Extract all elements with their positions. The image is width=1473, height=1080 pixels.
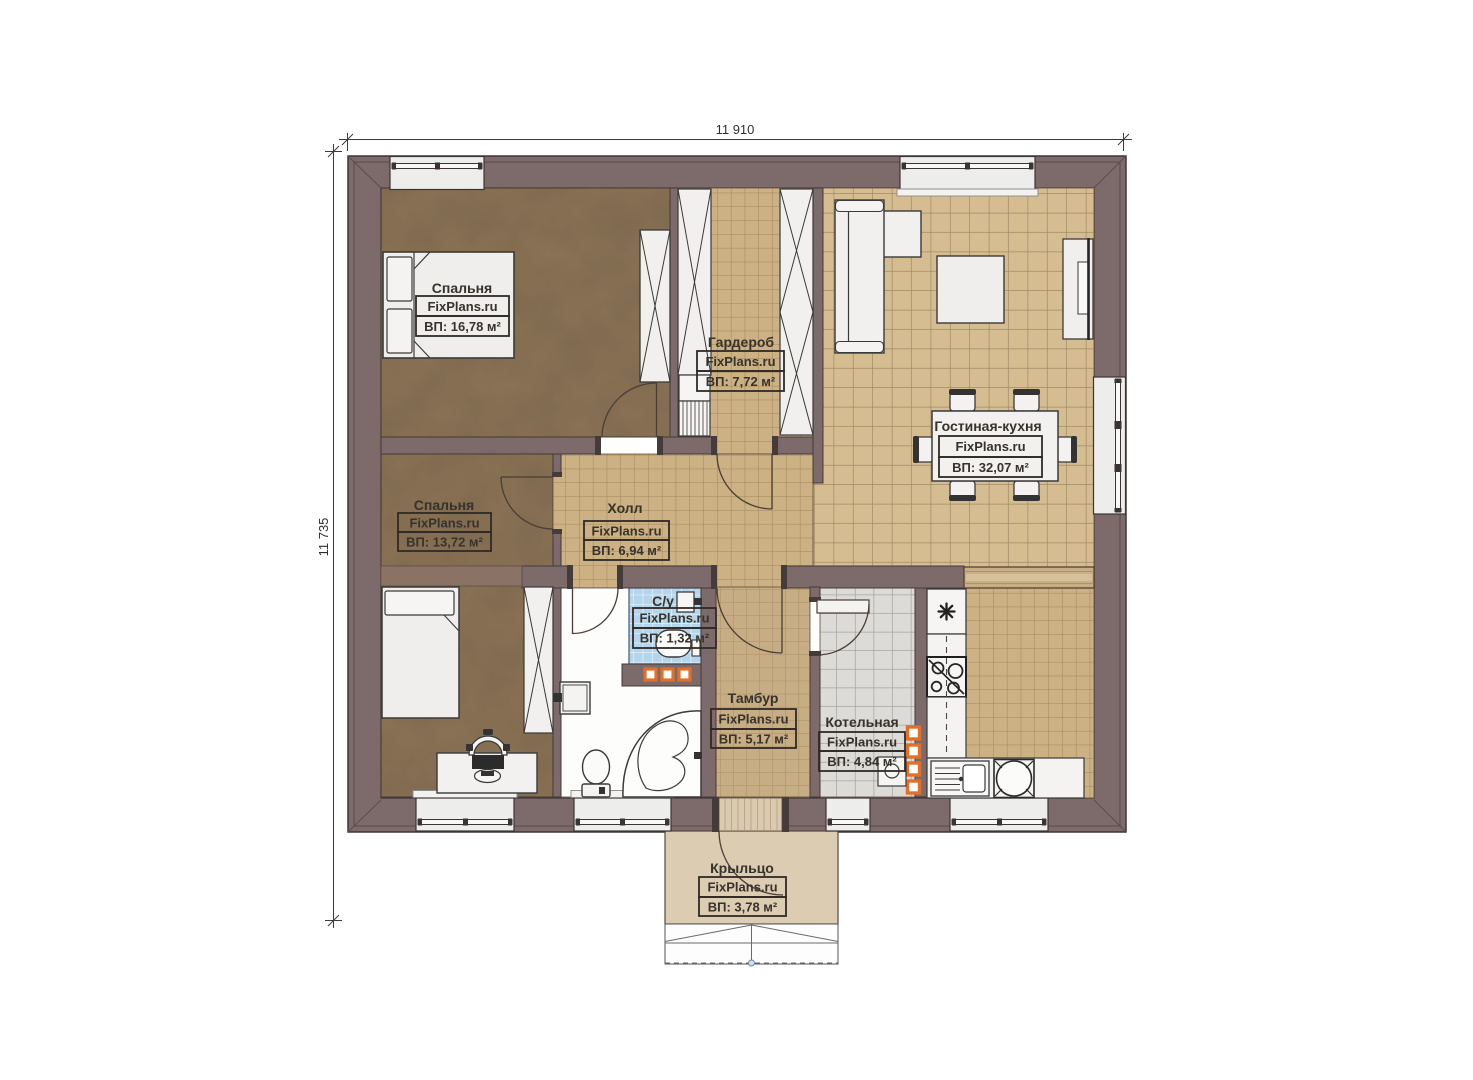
- svg-text:FixPlans.ru: FixPlans.ru: [591, 524, 661, 539]
- svg-text:Холл: Холл: [607, 500, 642, 516]
- svg-text:ВП: 4,84 м²: ВП: 4,84 м²: [827, 754, 897, 769]
- svg-text:ВП: 16,78 м²: ВП: 16,78 м²: [424, 319, 501, 334]
- svg-text:FixPlans.ru: FixPlans.ru: [639, 611, 709, 626]
- svg-text:FixPlans.ru: FixPlans.ru: [707, 880, 777, 895]
- svg-text:Тамбур: Тамбур: [728, 690, 779, 706]
- svg-text:ВП: 1,32 м²: ВП: 1,32 м²: [640, 631, 710, 646]
- svg-text:Гостиная-кухня: Гостиная-кухня: [934, 418, 1041, 434]
- svg-text:ВП: 5,17 м²: ВП: 5,17 м²: [719, 732, 789, 747]
- svg-text:11 735: 11 735: [316, 518, 331, 557]
- svg-text:Спальня: Спальня: [432, 280, 492, 296]
- svg-text:Котельная: Котельная: [825, 714, 898, 730]
- svg-text:Спальня: Спальня: [414, 497, 474, 513]
- svg-text:Гардероб: Гардероб: [708, 334, 775, 350]
- svg-text:ВП: 3,78 м²: ВП: 3,78 м²: [708, 900, 778, 915]
- svg-text:FixPlans.ru: FixPlans.ru: [409, 516, 479, 531]
- svg-text:FixPlans.ru: FixPlans.ru: [718, 712, 788, 727]
- svg-text:ВП: 13,72 м²: ВП: 13,72 м²: [406, 535, 483, 550]
- svg-text:FixPlans.ru: FixPlans.ru: [955, 439, 1025, 454]
- svg-text:FixPlans.ru: FixPlans.ru: [427, 299, 497, 314]
- svg-text:FixPlans.ru: FixPlans.ru: [705, 354, 775, 369]
- svg-text:ВП: 7,72 м²: ВП: 7,72 м²: [706, 374, 776, 389]
- svg-text:Крыльцо: Крыльцо: [710, 860, 774, 876]
- svg-text:ВП: 6,94 м²: ВП: 6,94 м²: [592, 543, 662, 558]
- svg-text:С/у: С/у: [652, 593, 674, 609]
- svg-text:FixPlans.ru: FixPlans.ru: [827, 735, 897, 750]
- svg-text:ВП: 32,07 м²: ВП: 32,07 м²: [952, 460, 1029, 475]
- svg-text:11 910: 11 910: [716, 122, 755, 137]
